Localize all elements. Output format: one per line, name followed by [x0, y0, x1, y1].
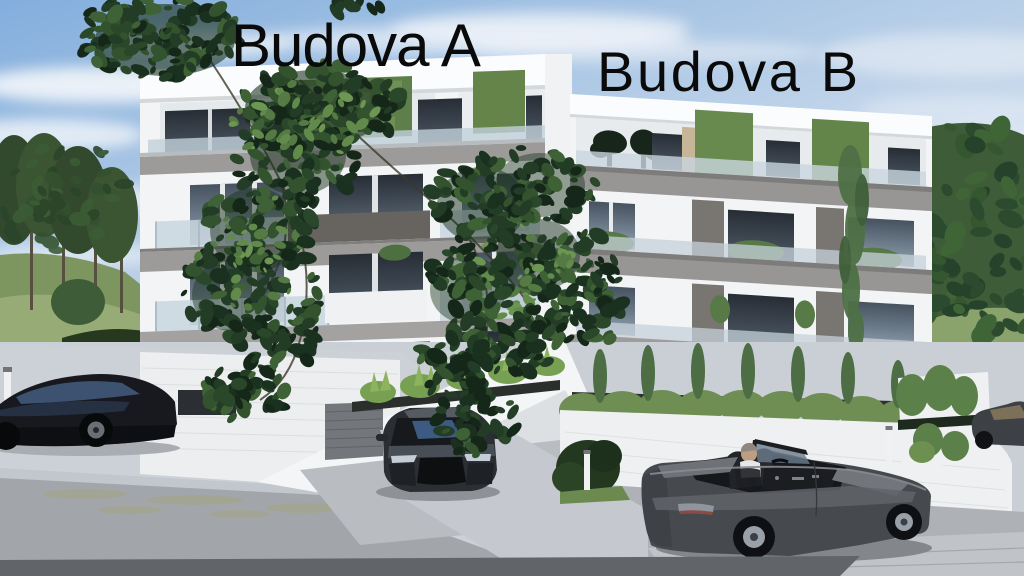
svg-text:Budova A: Budova A [231, 12, 481, 79]
svg-text:Budova B: Budova B [597, 40, 861, 103]
